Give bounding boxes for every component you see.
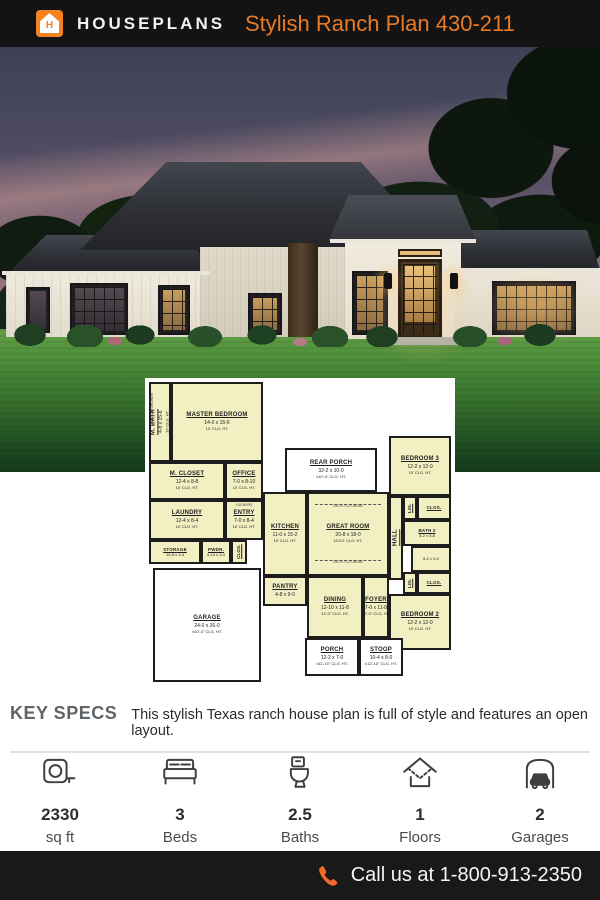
spec-label: Beds — [163, 829, 197, 846]
plan-room-closet: CLOS. — [231, 540, 247, 564]
plan-room-bath-2-water-closet: 8-2 x 5-0 — [411, 546, 451, 572]
eave-fascia — [2, 271, 210, 275]
plan-room-rear-porch: REAR PORCH 32-2 x 10-0 ±10'-4" CLG. HT. — [285, 448, 377, 492]
key-specs-section: KEY SPECS This stylish Texas ranch house… — [0, 695, 600, 753]
spec-value: 1 — [415, 805, 424, 825]
spec-sqft: 2330 sq ft — [0, 748, 120, 848]
porch-lantern-icon — [384, 273, 392, 289]
plan-label-deco-beam: DECO CLG BEAM — [315, 560, 381, 565]
logo-house-shape: H — [40, 13, 59, 33]
plan-room-closet: CLOS. — [417, 572, 451, 594]
page: H HOUSEPLANS Stylish Ranch Plan 430-211 — [0, 0, 600, 900]
plan-label-deco-beam: DECO CLG BEAM — [315, 504, 381, 509]
plan-label-lockers: LOCKERS — [236, 504, 253, 508]
spec-value: 3 — [175, 805, 184, 825]
spec-value: 2.5 — [288, 805, 312, 825]
plan-room-kitchen: KITCHEN 11-0 x 15-2 10' CLG. HT. — [263, 492, 307, 576]
house-floors-icon — [399, 752, 441, 799]
spec-value: 2 — [535, 805, 544, 825]
spec-garages: 2 Garages — [480, 748, 600, 848]
door-transom-window — [398, 249, 442, 257]
plan-room-linen: LIN. — [403, 496, 417, 520]
eave-fascia — [330, 239, 476, 243]
plan-room-garage: GARAGE 24-0 x 26-0 ±10'-4" CLG. HT. — [153, 568, 261, 682]
plan-room-great-room: DECO CLG BEAM GREAT ROOM 20-8 x 18-0 10'… — [307, 492, 389, 576]
phone-icon — [317, 864, 341, 888]
spec-label: Floors — [399, 829, 441, 846]
header-bar: H HOUSEPLANS Stylish Ranch Plan 430-211 — [0, 0, 600, 47]
plan-room-linen: LIN. — [403, 572, 417, 594]
plan-room-foyer: FOYER 7-0 x 11-8 12'-0" CLG. HT. — [363, 576, 389, 638]
plan-room-office: OFFICE 7-0 x 8-10 10' CLG. HT. — [225, 462, 263, 500]
plan-room-master-bedroom: MASTER BEDROOM 14-0 x 15-6 10' CLG. HT. — [171, 382, 263, 462]
plan-room-powder: PWDR. 5-10 x 3-4 — [201, 540, 231, 564]
foundation-shrubs — [0, 313, 600, 347]
plan-description: This stylish Texas ranch house plan is f… — [131, 707, 590, 739]
plan-label-walk-in-shower: WALK-IN SHOWER — [151, 393, 155, 424]
floor-plan-overlay: M. BATH 4-8 x 15-6 10' CLG. HT. WALK-IN … — [145, 378, 455, 693]
spec-value: 2330 — [41, 805, 79, 825]
plan-room-bedroom-3: BEDROOM 3 12-2 x 12-0 10' CLG. HT. — [389, 436, 451, 496]
plan-room-closet: CLOS. — [417, 496, 451, 520]
spec-label: sq ft — [46, 829, 74, 846]
spec-baths: 2.5 Baths — [240, 748, 360, 848]
spec-floors: 1 Floors — [360, 748, 480, 848]
call-us-bar[interactable]: Call us at 1-800-913-2350 — [0, 851, 600, 900]
houseplans-logo-icon[interactable]: H — [36, 10, 63, 37]
plan-room-porch: PORCH 12-2 x 7-0 ±11'-10" CLG. HT. — [305, 638, 359, 676]
toilet-icon — [279, 752, 321, 799]
call-us-text: Call us at 1-800-913-2350 — [351, 864, 582, 887]
plan-title: Stylish Ranch Plan 430-211 — [245, 11, 515, 37]
plan-room-hall: HALL — [389, 496, 403, 580]
plan-room-dining: DINING 12-10 x 11-8 12'-0" CLG. HT. — [307, 576, 363, 638]
tape-measure-icon — [39, 752, 81, 799]
key-specs-heading: KEY SPECS — [10, 703, 117, 724]
plan-room-laundry: LAUNDRY 12-4 x 8-4 10' CLG. HT. — [149, 500, 225, 540]
bed-icon — [159, 752, 201, 799]
brand-name[interactable]: HOUSEPLANS — [77, 14, 225, 34]
plan-room-pantry: PANTRY 4-8 x 9-0 — [263, 576, 307, 606]
spec-label: Garages — [511, 829, 569, 846]
plan-room-entry: LOCKERS ENTRY 7-0 x 8-4 10' CLG. HT. — [225, 500, 263, 540]
spec-stats-row: 2330 sq ft 3 Beds 2.5 Baths 1 Floors — [0, 748, 600, 848]
spec-beds: 3 Beds — [120, 748, 240, 848]
plan-room-master-closet: M. CLOSET 12-4 x 8-8 10' CLG. HT. — [149, 462, 225, 500]
plan-room-bath-2: BATH 2 8-2 x 5-8 — [403, 520, 451, 546]
logo-letter: H — [46, 20, 53, 31]
plan-room-stoop: STOOP 10-4 x 8-0 ±12'-10" CLG. HT. — [359, 638, 403, 676]
porch-lantern-icon — [450, 273, 458, 289]
plan-room-storage: STORAGE 10-8 x 3-4 — [149, 540, 201, 564]
garage-car-icon — [519, 752, 561, 799]
spec-label: Baths — [281, 829, 319, 846]
roof-entry-pavilion — [328, 195, 476, 241]
